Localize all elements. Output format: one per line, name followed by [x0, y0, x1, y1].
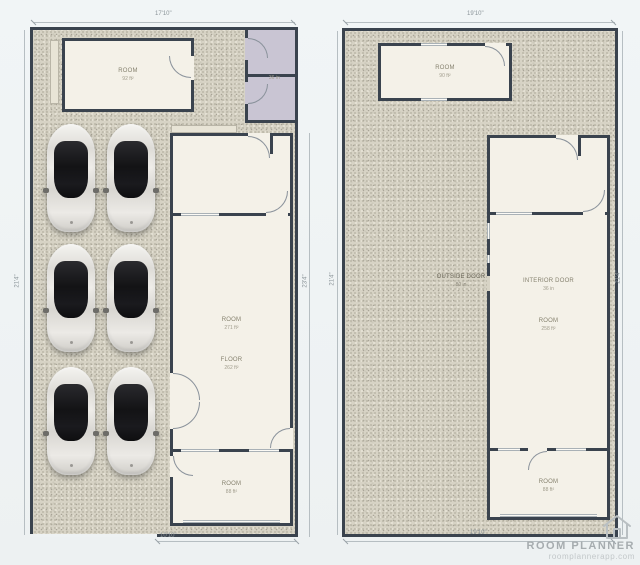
house-icon: [601, 514, 633, 540]
dimension-right: 21'4": [616, 270, 622, 283]
floorplan-canvas: ROOM 92 ft² 36 in: [0, 0, 640, 565]
car: [104, 124, 158, 232]
car-glass: [114, 141, 148, 198]
car-glass: [54, 141, 88, 198]
door-arc: [248, 84, 268, 104]
wall-cabinet: [50, 40, 59, 104]
dimension-bottom: 10'10": [160, 533, 177, 539]
dimension-line-right: [309, 133, 310, 537]
car-glass: [114, 261, 148, 318]
dimension-left: 21'4": [15, 274, 21, 287]
main-building: INTERIOR DOOR 36 in ROOM 258 ft² ROOM 88…: [487, 135, 610, 520]
door-arc: [248, 136, 270, 158]
room-label: ROOM 88 ft²: [539, 479, 558, 493]
dimension-bottom: 19'10": [470, 530, 487, 536]
room-label: ROOM 90 ft²: [435, 65, 454, 79]
car-glass: [54, 261, 88, 318]
car: [104, 244, 158, 352]
window: [498, 448, 520, 451]
room-label: ROOM 88 ft²: [222, 481, 241, 495]
watermark-url: roomplannerapp.com: [527, 552, 635, 562]
door-arc: [248, 38, 268, 58]
wall-stub: [270, 136, 273, 154]
door-arc: [270, 428, 290, 448]
dimension-right: 23'4": [303, 274, 309, 287]
car: [44, 244, 98, 352]
door-arc: [173, 373, 200, 400]
dimension-top: 17'10": [155, 11, 172, 17]
shelf-strip: [171, 125, 237, 133]
car: [44, 124, 98, 232]
car: [104, 367, 158, 475]
dimension-line-top: [345, 22, 615, 23]
door-gap: [266, 213, 288, 216]
dimension-line-top: [33, 22, 295, 23]
wall-stub: [578, 138, 581, 156]
dimension-top: 19'10": [467, 11, 484, 17]
room-label: ROOM 271 ft²: [222, 317, 241, 331]
watermark-brand: ROOM PLANNER: [527, 540, 635, 552]
door-gap: [290, 428, 293, 449]
window: [421, 43, 447, 46]
door-arc: [266, 191, 288, 213]
car: [44, 367, 98, 475]
window: [496, 212, 532, 215]
dimension-line-left: [24, 30, 25, 535]
room-top-left: ROOM 92 ft²: [62, 38, 194, 112]
room-label: FLOOR 262 ft²: [221, 357, 243, 371]
room-label: INTERIOR DOOR 36 in: [523, 278, 574, 292]
door-gap: [487, 276, 490, 291]
door-gap: [583, 212, 605, 215]
dimension-line-left: [337, 31, 338, 535]
door-arc: [528, 451, 547, 470]
window: [556, 448, 586, 451]
room-label: ROOM 92 ft²: [118, 68, 137, 82]
window: [181, 449, 219, 452]
window: [181, 213, 219, 216]
door-arc: [173, 456, 193, 476]
divider-label: 36 in: [269, 75, 280, 81]
main-building: ROOM 271 ft² FLOOR 262 ft² ROOM 88 ft²: [170, 133, 293, 526]
door-gap: [191, 56, 194, 80]
window: [249, 449, 279, 452]
garage-opening: [30, 534, 157, 537]
door-arc: [556, 138, 578, 160]
door-arc: [173, 402, 200, 429]
room-lavender-block: 36 in: [245, 27, 298, 123]
right-floorplan: ROOM 90 ft²: [342, 28, 618, 537]
window: [487, 255, 490, 263]
window: [487, 223, 490, 239]
room-label: ROOM 258 ft²: [539, 318, 558, 332]
dimension-line-right: [622, 31, 623, 535]
window: [183, 520, 280, 523]
door-arc: [169, 56, 191, 78]
dimension-line-bottom: [157, 541, 297, 542]
watermark: ROOM PLANNER roomplannerapp.com: [527, 514, 635, 562]
room-top-left: ROOM 90 ft²: [378, 43, 512, 101]
door-arc: [485, 46, 505, 66]
left-floorplan: ROOM 92 ft² 36 in: [30, 27, 298, 537]
outside-door-label: OUTSIDE DOOR 80 in: [437, 274, 486, 288]
dimension-left: 21'4": [330, 272, 336, 285]
door-arc: [583, 190, 605, 212]
car-glass: [114, 384, 148, 441]
window: [421, 98, 447, 101]
car-glass: [54, 384, 88, 441]
